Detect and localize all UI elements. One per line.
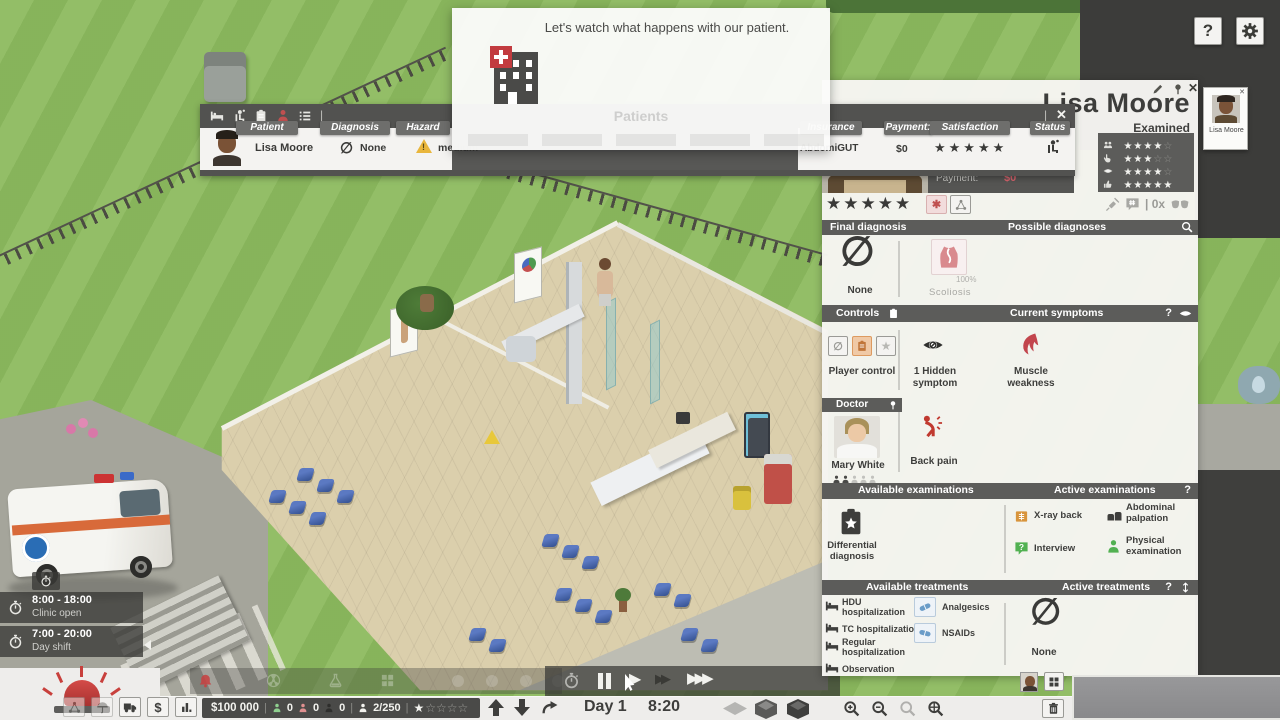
radiation-icon[interactable] bbox=[266, 673, 281, 688]
stats-button[interactable] bbox=[175, 697, 197, 717]
scoliosis-diagnosis[interactable]: 100% Scoliosis bbox=[914, 239, 986, 301]
nsaids-button[interactable] bbox=[914, 623, 936, 643]
alert-icon[interactable] bbox=[198, 673, 213, 688]
differential-diagnosis-icon[interactable] bbox=[836, 507, 866, 537]
zoom-default-icon[interactable] bbox=[899, 700, 916, 717]
control-auto-button[interactable]: ★ bbox=[876, 336, 896, 356]
muscle-weakness-icon[interactable] bbox=[1018, 332, 1042, 356]
back-pain-label: Back pain bbox=[904, 456, 964, 468]
trash-icon bbox=[1047, 702, 1060, 715]
row-diagnosis-glyph: ∅ bbox=[340, 139, 353, 157]
differential-diagnosis-label: Differential diagnosis bbox=[822, 541, 886, 563]
examinations-section-body: Differential diagnosis X-ray back Abdomi… bbox=[822, 499, 1198, 580]
super-speed-button[interactable]: ▶▶▶ bbox=[687, 669, 710, 687]
status-sitting-icon bbox=[1044, 139, 1060, 155]
diagnosis-section-body: ∅ None 100% Scoliosis bbox=[822, 235, 1198, 305]
controls-title: Controls bbox=[836, 307, 879, 319]
delete-tool-button[interactable] bbox=[1042, 699, 1064, 718]
examinations-section-header: Available examinations Active examinatio… bbox=[822, 483, 1198, 499]
flask-icon[interactable] bbox=[328, 673, 343, 688]
final-diagnosis-value: None bbox=[828, 285, 892, 297]
diagnosis-section-header: Final diagnosis Possible diagnoses bbox=[822, 220, 1198, 235]
windshield bbox=[119, 489, 161, 518]
healthy-count: 0 bbox=[287, 702, 293, 714]
overall-rating-icon bbox=[1103, 179, 1113, 189]
syringe-icon[interactable] bbox=[1105, 197, 1120, 212]
patient-portrait-card[interactable]: ✕ Lisa Moore bbox=[1203, 87, 1248, 150]
sort-icon[interactable] bbox=[1180, 582, 1191, 593]
sick-count: 0 bbox=[313, 702, 319, 714]
col-patient[interactable]: Patient bbox=[236, 121, 298, 135]
dark-area-bottomright bbox=[1195, 470, 1280, 680]
stopwatch-icon bbox=[8, 634, 23, 649]
col-satisfaction[interactable]: Satisfaction bbox=[930, 121, 1010, 135]
doctor-portrait[interactable] bbox=[834, 416, 880, 458]
treatments-section-header: Available treatments Active treatments ? bbox=[822, 580, 1198, 595]
player-control-label: Player control bbox=[824, 366, 900, 378]
row-patient-name: Lisa Moore bbox=[255, 142, 313, 154]
help-icon[interactable]: ? bbox=[1165, 307, 1172, 319]
build-toolbar-faded bbox=[190, 668, 562, 694]
pause-button[interactable] bbox=[597, 673, 613, 689]
final-diagnosis-title: Final diagnosis bbox=[830, 221, 906, 233]
interview-label: Interview bbox=[1034, 544, 1075, 555]
day-shift-label: Day shift bbox=[32, 642, 71, 653]
row-satisfaction-stars: ★★★★★ bbox=[934, 140, 1007, 156]
col-status[interactable]: Status bbox=[1030, 121, 1070, 135]
relations-tool-button[interactable] bbox=[63, 697, 85, 717]
ratings-box: ★★★★☆ ★★★☆☆ ★★★★☆ ★★★★★ bbox=[1098, 133, 1194, 192]
ghost-tab bbox=[468, 134, 528, 146]
symptoms-section-header: Controls Current symptoms ? bbox=[822, 305, 1198, 322]
healthy-patients-icon bbox=[272, 703, 282, 713]
dumpster bbox=[204, 52, 246, 102]
row-diagnosis-value: None bbox=[360, 142, 386, 154]
xray-back-label: X-ray back bbox=[1034, 511, 1082, 522]
hidden-symptom-label: 1 Hidden symptom bbox=[902, 366, 968, 389]
help-icon[interactable]: ? bbox=[1184, 484, 1191, 496]
dollar-glyph: $ bbox=[154, 700, 161, 715]
bed-tab-icon[interactable] bbox=[210, 109, 224, 123]
satisfaction-stars: ★★★★★ bbox=[826, 194, 912, 214]
tool-icon[interactable] bbox=[486, 675, 498, 687]
no-treatment-glyph: ∅ bbox=[1030, 595, 1061, 633]
settings-button[interactable] bbox=[1236, 17, 1264, 45]
active-treatments-value: None bbox=[1018, 647, 1070, 659]
sick-patients-icon bbox=[298, 703, 308, 713]
analgesics-button[interactable] bbox=[914, 597, 936, 617]
locate-pin-icon[interactable] bbox=[888, 400, 898, 410]
analgesics-icon bbox=[918, 600, 932, 614]
tutorial-message: Let's watch what happens with our patien… bbox=[512, 20, 822, 35]
col-hazard[interactable]: Hazard bbox=[396, 121, 450, 135]
doctor-section-header: Doctor bbox=[822, 398, 902, 412]
control-none-button[interactable]: ∅ bbox=[828, 336, 848, 356]
play-button[interactable]: ▶ bbox=[629, 669, 641, 689]
row-avatar bbox=[212, 130, 242, 166]
diagnosis-probability: 100% bbox=[956, 275, 976, 284]
modules-icon[interactable] bbox=[380, 673, 395, 688]
ghost-tab bbox=[764, 134, 824, 146]
objection-count: | 0x bbox=[1145, 197, 1165, 211]
water-drop bbox=[1252, 376, 1265, 393]
insurance-tool-button[interactable] bbox=[91, 697, 113, 717]
controls-clipboard-icon[interactable] bbox=[888, 308, 899, 319]
floor-down-button[interactable] bbox=[513, 699, 531, 717]
hospital-icon bbox=[490, 46, 542, 104]
help-button[interactable]: ? bbox=[1194, 17, 1222, 45]
palpation-icon[interactable] bbox=[1106, 507, 1122, 523]
available-examinations-title: Available examinations bbox=[858, 484, 974, 496]
available-treatments-title: Available treatments bbox=[866, 581, 968, 593]
game-screen: 8:00 - 18:00 Clinic open 7:00 - 20:00 Da… bbox=[0, 0, 1280, 720]
dark-area-right bbox=[1195, 150, 1280, 238]
hdu-icon[interactable] bbox=[825, 599, 839, 613]
umbrella-icon bbox=[96, 701, 109, 714]
stopwatch-icon bbox=[40, 575, 52, 587]
no-diagnosis-glyph: ∅ bbox=[840, 235, 875, 275]
relations-button[interactable] bbox=[950, 195, 971, 214]
zoom-out-icon[interactable] bbox=[871, 700, 888, 717]
ghost-tab bbox=[690, 134, 750, 146]
minimap[interactable] bbox=[1072, 675, 1280, 720]
capacity-value: 2/250 bbox=[373, 702, 401, 714]
symptoms-section-body: ∅ ★ Player control 1 Hidden symptom Musc… bbox=[822, 322, 1198, 398]
close-icon[interactable]: ✕ bbox=[1239, 88, 1245, 96]
nsaids-icon bbox=[915, 623, 935, 643]
visibility-icon[interactable] bbox=[1179, 307, 1192, 320]
flower-bed bbox=[64, 416, 102, 446]
player-control-icon bbox=[856, 340, 868, 352]
clock-label: 8:20 bbox=[648, 698, 680, 716]
help-icon[interactable]: ? bbox=[1165, 581, 1172, 593]
patient-figure[interactable] bbox=[594, 258, 616, 318]
plant bbox=[614, 588, 632, 614]
tree-stump bbox=[420, 294, 434, 312]
incognito-mask-icon[interactable] bbox=[1170, 197, 1190, 212]
divider: | bbox=[1044, 108, 1047, 122]
complaint-bubble-icon[interactable] bbox=[1125, 197, 1140, 212]
day-shift-time: 7:00 - 20:00 bbox=[32, 628, 92, 640]
gear-icon bbox=[1241, 22, 1259, 40]
ems-emblem bbox=[22, 534, 50, 562]
ghost-tab bbox=[616, 134, 676, 146]
tutorial-dialog[interactable]: Let's watch what happens with our patien… bbox=[452, 8, 830, 150]
current-symptoms-title: Current symptoms bbox=[1010, 307, 1103, 319]
hazard-warning-icon: ! bbox=[416, 139, 432, 153]
tc-icon[interactable] bbox=[825, 621, 839, 635]
ambulance-icon bbox=[123, 700, 137, 714]
triangle-network-icon bbox=[955, 199, 967, 211]
clinic-hours-time: 8:00 - 18:00 bbox=[32, 594, 92, 606]
nsaids-label: NSAIDs bbox=[942, 628, 975, 638]
triangle-network-icon bbox=[68, 701, 81, 714]
regular-label: Regular hospitalization bbox=[842, 637, 912, 658]
monitor bbox=[676, 412, 690, 424]
staff-thumbnail[interactable] bbox=[1020, 672, 1038, 692]
ghost-window-title: Patients bbox=[452, 108, 830, 124]
blue-beacon bbox=[120, 472, 134, 480]
xray-back-icon[interactable] bbox=[1014, 509, 1029, 524]
shift-stub[interactable] bbox=[32, 572, 60, 590]
other-patients-icon bbox=[324, 703, 334, 713]
tool-icon[interactable] bbox=[452, 675, 464, 687]
collapse-arrow-icon[interactable] bbox=[144, 640, 151, 650]
yellow-bin bbox=[733, 486, 751, 510]
active-examinations-title: Active examinations bbox=[1054, 484, 1156, 496]
clinic-hours-label: Clinic open bbox=[32, 608, 81, 619]
physical-exam-label: Physical examination bbox=[1126, 536, 1188, 558]
day-shift-row[interactable]: 7:00 - 20:00 Day shift bbox=[0, 626, 143, 657]
ambulance-tool-button[interactable] bbox=[119, 697, 141, 717]
palpation-label: Abdominal palpation bbox=[1126, 503, 1188, 525]
status-chip: $100 000 | 0 0 0 | 2/250 | ★ ☆☆☆☆ bbox=[202, 698, 480, 718]
back-pain-icon[interactable] bbox=[920, 414, 944, 438]
magnifier-icon[interactable] bbox=[1181, 221, 1193, 233]
stopwatch-icon bbox=[8, 600, 23, 615]
clinic-hours-row[interactable]: 8:00 - 18:00 Clinic open bbox=[0, 592, 143, 623]
regular-icon[interactable] bbox=[825, 639, 839, 653]
snack-machine bbox=[764, 454, 792, 504]
row-payment-value: $0 bbox=[896, 143, 908, 155]
copy-tool-button[interactable] bbox=[1044, 672, 1064, 691]
floor-up-button[interactable] bbox=[487, 699, 505, 717]
observation-icon[interactable] bbox=[825, 661, 839, 675]
interview-icon[interactable] bbox=[1014, 541, 1029, 556]
doctor-name: Mary White bbox=[822, 460, 894, 472]
hdu-label: HDU hospitalization bbox=[842, 597, 912, 618]
doctor-title: Doctor bbox=[836, 399, 868, 410]
possible-diagnoses-title: Possible diagnoses bbox=[1008, 221, 1106, 233]
control-player-button[interactable] bbox=[852, 336, 872, 356]
vending-machine bbox=[744, 412, 770, 458]
list-tab-icon[interactable] bbox=[298, 109, 312, 123]
portrait-name: Lisa Moore bbox=[1204, 126, 1249, 135]
fast-forward-button[interactable]: ▶▶ bbox=[655, 671, 667, 687]
divider: | bbox=[320, 108, 323, 122]
portrait-thumb bbox=[1212, 95, 1240, 123]
medical-record-button[interactable]: ✱ bbox=[926, 195, 947, 214]
col-diagnosis[interactable]: Diagnosis bbox=[320, 121, 390, 135]
hidden-symptom-icon[interactable] bbox=[920, 334, 946, 356]
copy-icon bbox=[1048, 676, 1060, 688]
col-payment[interactable]: Payment: bbox=[884, 121, 932, 135]
day-label: Day 1 bbox=[584, 698, 627, 716]
hospital-rating-filled: ★ bbox=[413, 701, 424, 715]
scoliosis-icon bbox=[936, 244, 962, 270]
observation-label: Observation bbox=[842, 664, 932, 674]
diagnosis-label: Scoliosis bbox=[914, 287, 986, 298]
ghost-tab bbox=[542, 134, 602, 146]
rotate-view-icon[interactable] bbox=[540, 700, 560, 717]
muscle-weakness-label: Muscle weakness bbox=[998, 366, 1064, 389]
sidewalk-right bbox=[1195, 404, 1280, 470]
zoom-fit-icon[interactable] bbox=[927, 700, 944, 717]
bar-chart-icon bbox=[180, 701, 193, 714]
schedule-icon[interactable] bbox=[563, 672, 580, 689]
other-count: 0 bbox=[339, 702, 345, 714]
treatments-section-body: HDU hospitalization TC hospitalization R… bbox=[822, 595, 1198, 676]
tool-icon[interactable] bbox=[520, 675, 532, 687]
zoom-in-icon[interactable] bbox=[843, 700, 860, 717]
time-controls-strip: ▶ ▶▶ ▶▶▶ bbox=[545, 666, 840, 696]
help-glyph: ? bbox=[1203, 21, 1213, 41]
hospital-rating-empty: ☆☆☆☆ bbox=[425, 701, 468, 715]
rating-stars: ★★★★★ bbox=[1123, 180, 1173, 191]
active-treatments-title: Active treatments bbox=[1062, 581, 1150, 593]
list-footer bbox=[200, 170, 1075, 176]
analgesics-label: Analgesics bbox=[942, 602, 990, 612]
physical-exam-icon[interactable] bbox=[1106, 539, 1121, 554]
money-value: $100 000 bbox=[211, 702, 259, 714]
doctor-workload bbox=[832, 471, 877, 483]
red-beacon bbox=[94, 474, 114, 483]
finance-button[interactable]: $ bbox=[147, 697, 169, 717]
capacity-icon bbox=[358, 703, 368, 713]
ambulance[interactable] bbox=[0, 458, 192, 610]
